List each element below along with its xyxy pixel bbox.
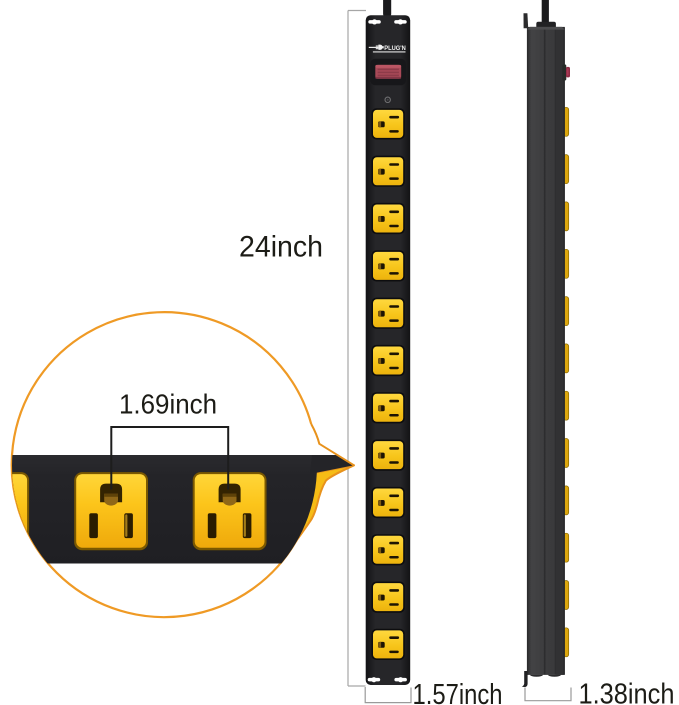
svg-text:1.57inch: 1.57inch xyxy=(413,679,503,705)
svg-text:1.69inch: 1.69inch xyxy=(119,389,217,420)
svg-text:24inch: 24inch xyxy=(239,231,323,264)
svg-text:PLUG'N: PLUG'N xyxy=(384,45,406,52)
svg-text:1.38inch: 1.38inch xyxy=(579,679,675,705)
